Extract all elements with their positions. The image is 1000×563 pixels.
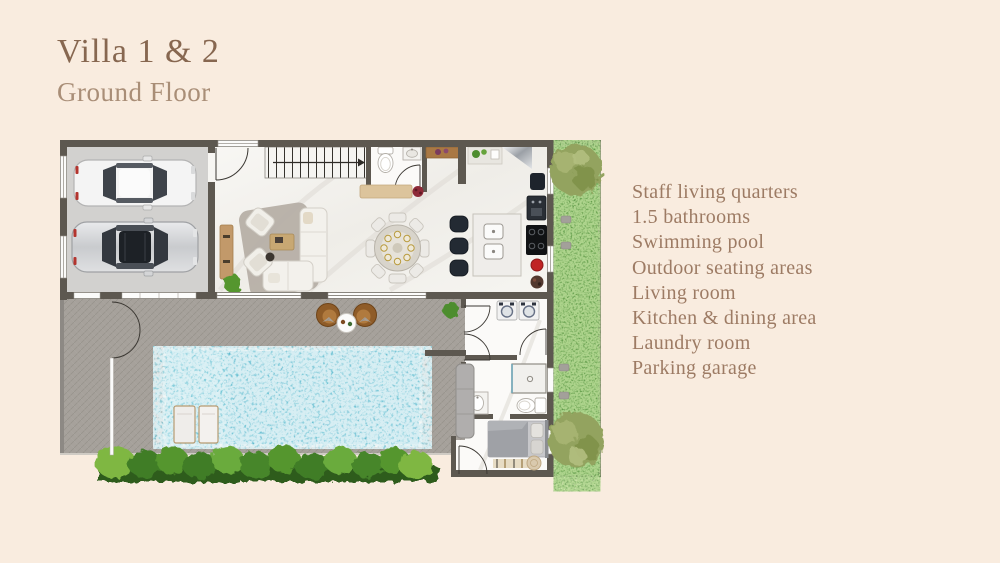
bedroom-rug [493,459,529,468]
car-white [74,156,196,210]
garden-hedge-right [548,144,604,475]
feature-item: Kitchen & dining area [632,306,817,331]
console-table [220,225,233,279]
feature-item: Parking garage [632,356,817,381]
page: { "header": { "title": "Villa 1 & 2", "s… [0,0,1000,563]
feature-item: 1.5 bathrooms [632,205,817,230]
tree-top [550,144,602,196]
plant [223,274,241,292]
garage-door [74,293,196,299]
mudroom-bench [360,185,412,198]
sink [403,147,421,160]
side-table [266,253,275,262]
cooktop [526,225,547,255]
page-subtitle: Ground Floor [57,77,211,108]
patio-chair [317,304,340,327]
feature-item: Swimming pool [632,230,817,255]
staircase [265,147,368,178]
pouf [527,456,541,470]
deck-side-wall [110,358,114,455]
deck-plant [443,302,459,318]
feature-item: Living room [632,281,817,306]
deck-left-edge [60,299,64,455]
dryer [519,301,539,320]
feature-list: Staff living quarters 1.5 bathrooms Swim… [632,180,817,382]
swimming-pool [163,348,422,447]
page-title: Villa 1 & 2 [57,33,220,71]
tree-bottom [548,412,604,468]
bed [488,420,549,458]
toilet [517,398,546,413]
bar-stools [450,216,468,276]
kitchen-island [473,214,521,276]
patio-chair [354,304,377,327]
car-silver [72,218,198,276]
fruit-bowl [531,276,544,289]
powder-room [366,140,427,192]
red-kettle [531,259,543,271]
feature-item: Outdoor seating areas [632,256,817,281]
floor-plan [60,140,605,492]
deck-bench [456,364,474,438]
washer [497,301,517,320]
patio-table [337,314,356,333]
feature-item: Staff living quarters [632,180,817,205]
feature-item: Laundry room [632,331,817,356]
coffee-machine [530,173,545,190]
shower [512,364,546,393]
toilet [378,147,393,173]
flower-decor [413,186,424,197]
